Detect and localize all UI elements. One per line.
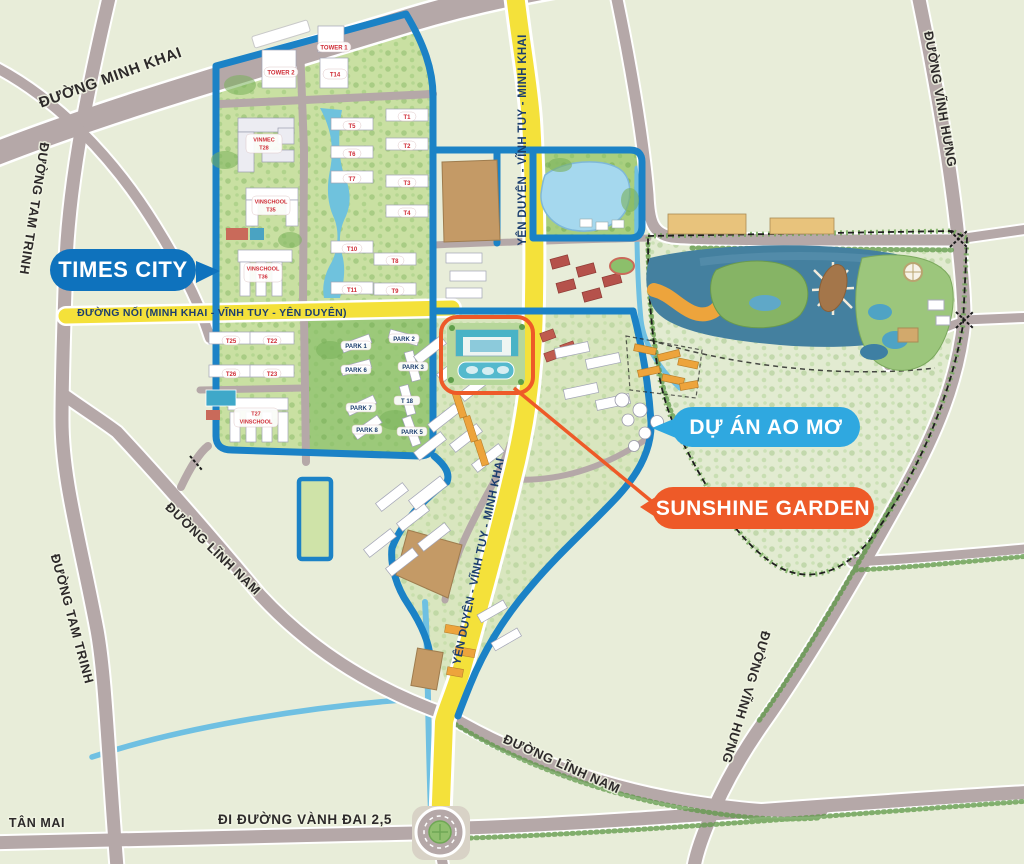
svg-text:T36: T36 xyxy=(258,275,267,281)
times-city-label: TIMES CITY xyxy=(58,257,187,282)
t18-tag: T 18 xyxy=(401,399,414,405)
label-vanh-dai: ĐI ĐƯỜNG VÀNH ĐAI 2,5 xyxy=(218,812,392,827)
t14-tag: T14 xyxy=(330,73,341,79)
svg-text:PARK 2: PARK 2 xyxy=(393,337,415,343)
svg-text:T22: T22 xyxy=(267,339,278,345)
svg-text:T3: T3 xyxy=(403,181,411,187)
svg-text:PARK 7: PARK 7 xyxy=(350,406,372,412)
svg-text:T2: T2 xyxy=(403,144,411,150)
svg-text:T27: T27 xyxy=(251,412,260,418)
svg-text:T35: T35 xyxy=(266,208,275,214)
svg-text:T8: T8 xyxy=(391,259,399,265)
svg-text:T23: T23 xyxy=(267,372,278,378)
masterplan-map: TOWER 1 TOWER 2 T14 VINMEC T28 VINSCHOOL… xyxy=(0,0,1024,864)
roundabout xyxy=(412,806,470,860)
ao-mo-label: DỰ ÁN AO MƠ xyxy=(689,416,842,439)
svg-text:VINSCHOOL: VINSCHOOL xyxy=(247,267,280,273)
svg-text:PARK 6: PARK 6 xyxy=(345,368,367,374)
svg-text:T11: T11 xyxy=(347,288,358,294)
svg-text:T9: T9 xyxy=(391,289,399,295)
ao-mo-island xyxy=(711,261,808,328)
label-yen-duyen-1: YÊN DUYÊN - VĨNH TUY - MINH KHAI xyxy=(516,34,529,245)
svg-text:T28: T28 xyxy=(259,146,268,152)
svg-text:VINMEC: VINMEC xyxy=(253,138,274,144)
svg-text:VINSCHOOL: VINSCHOOL xyxy=(255,200,288,206)
map-canvas: TOWER 1 TOWER 2 T14 VINMEC T28 VINSCHOOL… xyxy=(0,0,1024,864)
svg-text:T1: T1 xyxy=(403,115,411,121)
label-tan-mai: TÂN MAI xyxy=(9,815,65,830)
svg-text:T7: T7 xyxy=(348,177,356,183)
svg-text:T25: T25 xyxy=(226,339,237,345)
green-block-west xyxy=(299,479,331,559)
svg-text:VINSCHOOL: VINSCHOOL xyxy=(240,420,273,426)
svg-text:T4: T4 xyxy=(403,211,411,217)
sunshine-label: SUNSHINE GARDEN xyxy=(656,497,870,520)
svg-text:PARK 8: PARK 8 xyxy=(356,428,378,434)
svg-text:T10: T10 xyxy=(347,247,358,253)
svg-text:PARK 1: PARK 1 xyxy=(345,344,367,350)
svg-text:PARK 3: PARK 3 xyxy=(402,365,424,371)
svg-text:PARK 5: PARK 5 xyxy=(401,430,423,436)
svg-text:T6: T6 xyxy=(348,152,356,158)
svg-text:T5: T5 xyxy=(348,124,356,130)
tower2-tag: TOWER 2 xyxy=(267,71,295,77)
tower1-tag: TOWER 1 xyxy=(320,46,348,52)
label-duong-noi: ĐƯỜNG NỐI (MINH KHAI - VĨNH TUY - YÊN DU… xyxy=(77,305,347,319)
svg-text:T26: T26 xyxy=(226,372,237,378)
